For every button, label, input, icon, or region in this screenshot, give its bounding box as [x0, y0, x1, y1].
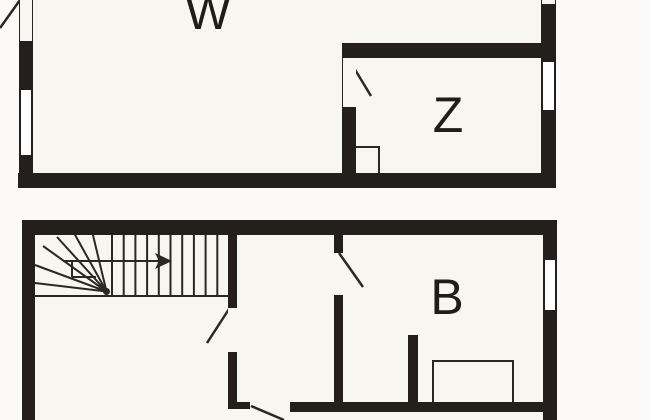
upper-left-window	[19, 88, 33, 157]
room-b-door-swing-line	[339, 253, 363, 287]
floor-plan-canvas: W Z B	[0, 0, 650, 420]
upper-right-window	[541, 60, 556, 112]
lower-plan-linework	[207, 253, 513, 420]
room-b-fixture-rectangle	[433, 361, 513, 402]
lower-right-wall	[543, 220, 557, 420]
room-label-z: Z	[433, 90, 464, 140]
lower-door-swing-line	[251, 406, 284, 420]
room-z-flue-niche	[355, 147, 379, 176]
room-b-partition-wall	[334, 295, 343, 412]
stair-walk-line	[63, 261, 158, 277]
staircase	[35, 231, 237, 296]
room-label-b: B	[430, 272, 463, 322]
room-b-window	[543, 258, 557, 312]
room-b-wall-stub	[408, 335, 418, 402]
stair-treads	[112, 235, 217, 296]
room-label-w: W	[185, 0, 230, 38]
lower-top-wall	[22, 220, 557, 235]
hall-door-opening	[228, 308, 237, 352]
winder-pivot-point	[103, 288, 110, 295]
room-z-top-wall	[342, 43, 541, 58]
lower-left-wall	[22, 220, 35, 420]
hall-door-swing-line	[207, 309, 229, 343]
entry-door-opening	[19, 0, 33, 41]
upper-right-top-window-cropped	[541, 0, 556, 4]
upper-bottom-wall	[18, 173, 556, 188]
entry-door-swing-line	[0, 0, 20, 28]
room-z-door-opening	[342, 58, 356, 107]
room-b-partition-stub	[334, 235, 343, 253]
lower-wall-stub	[228, 402, 250, 409]
lower-inner-bottom-wall	[290, 402, 557, 412]
